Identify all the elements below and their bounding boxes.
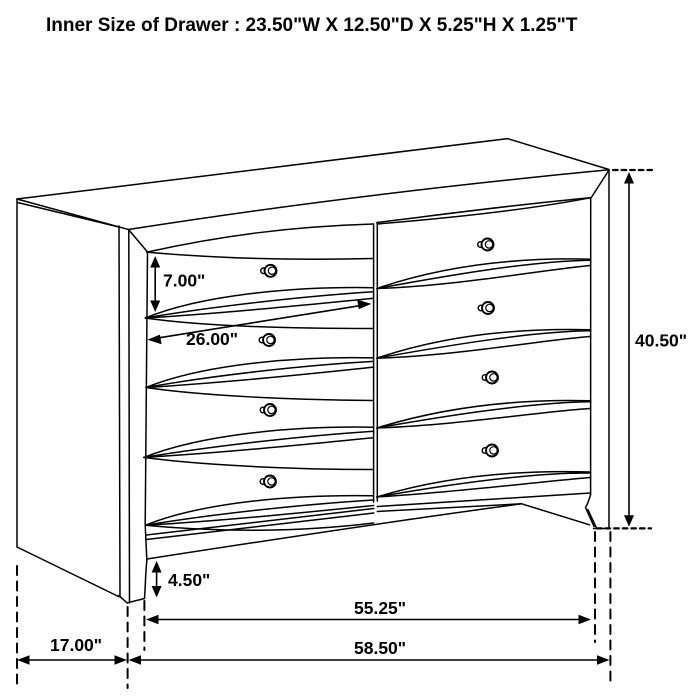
svg-text:40.50": 40.50"	[635, 331, 687, 351]
svg-text:55.25": 55.25"	[354, 598, 406, 618]
svg-text:4.50": 4.50"	[168, 570, 210, 590]
svg-text:17.00": 17.00"	[50, 635, 102, 655]
svg-text:7.00": 7.00"	[163, 271, 205, 291]
svg-text:58.50": 58.50"	[354, 638, 406, 658]
svg-text:26.00": 26.00"	[186, 329, 238, 349]
svg-text:Inner Size of Drawer : 23.50"W: Inner Size of Drawer : 23.50"W X 12.50"D…	[46, 15, 578, 36]
